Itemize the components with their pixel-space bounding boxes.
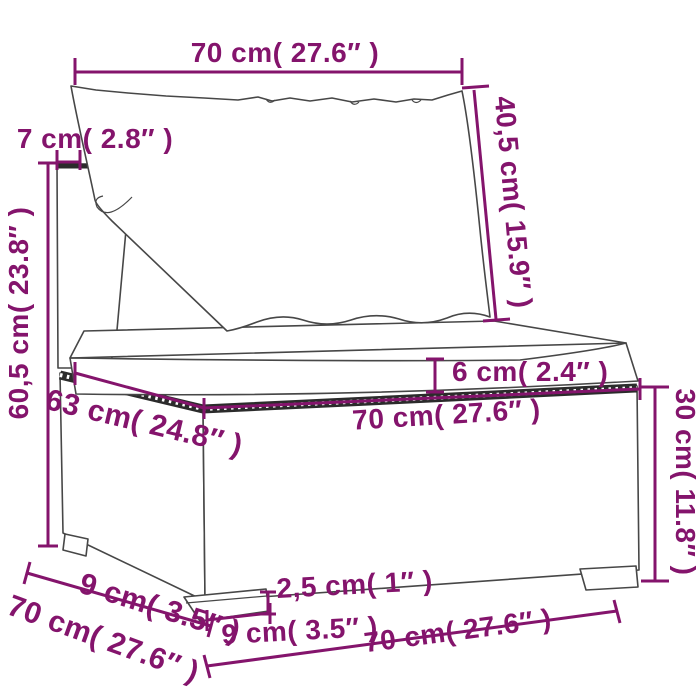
dimension-base-height: 30 cm( 11.8″ ) [641, 387, 700, 581]
product-dimension-diagram: 70 cm( 27.6″ ) 7 cm( 2.8″ ) 40,5 cm( 15.… [0, 0, 700, 700]
dimension-label-bottom-width: 70 cm( 27.6″ ) [362, 603, 553, 658]
dimension-foot-height: 2,5 cm( 1″ ) [260, 565, 433, 614]
dimension-label-total-height: 60,5 cm( 23.8″ ) [3, 207, 34, 420]
dimension-label-back-cushion-height: 40,5 cm( 15.9″ ) [489, 95, 538, 310]
dimension-label-top-width: 70 cm( 27.6″ ) [191, 37, 380, 68]
dimension-seat-cushion-thickness: 6 cm( 2.4″ ) [426, 356, 608, 392]
dimension-label-seat-cushion-thickness: 6 cm( 2.4″ ) [452, 356, 608, 387]
dimension-label-backrest-thickness: 7 cm( 2.8″ ) [17, 123, 173, 154]
sofa-line-art [56, 86, 639, 621]
seat-cushion-top [70, 321, 626, 358]
dimension-total-height: 60,5 cm( 23.8″ ) [3, 163, 58, 546]
dimension-top-width: 70 cm( 27.6″ ) [75, 37, 462, 85]
dimension-label-base-height: 30 cm( 11.8″ ) [670, 389, 700, 576]
foot-right [580, 566, 638, 590]
